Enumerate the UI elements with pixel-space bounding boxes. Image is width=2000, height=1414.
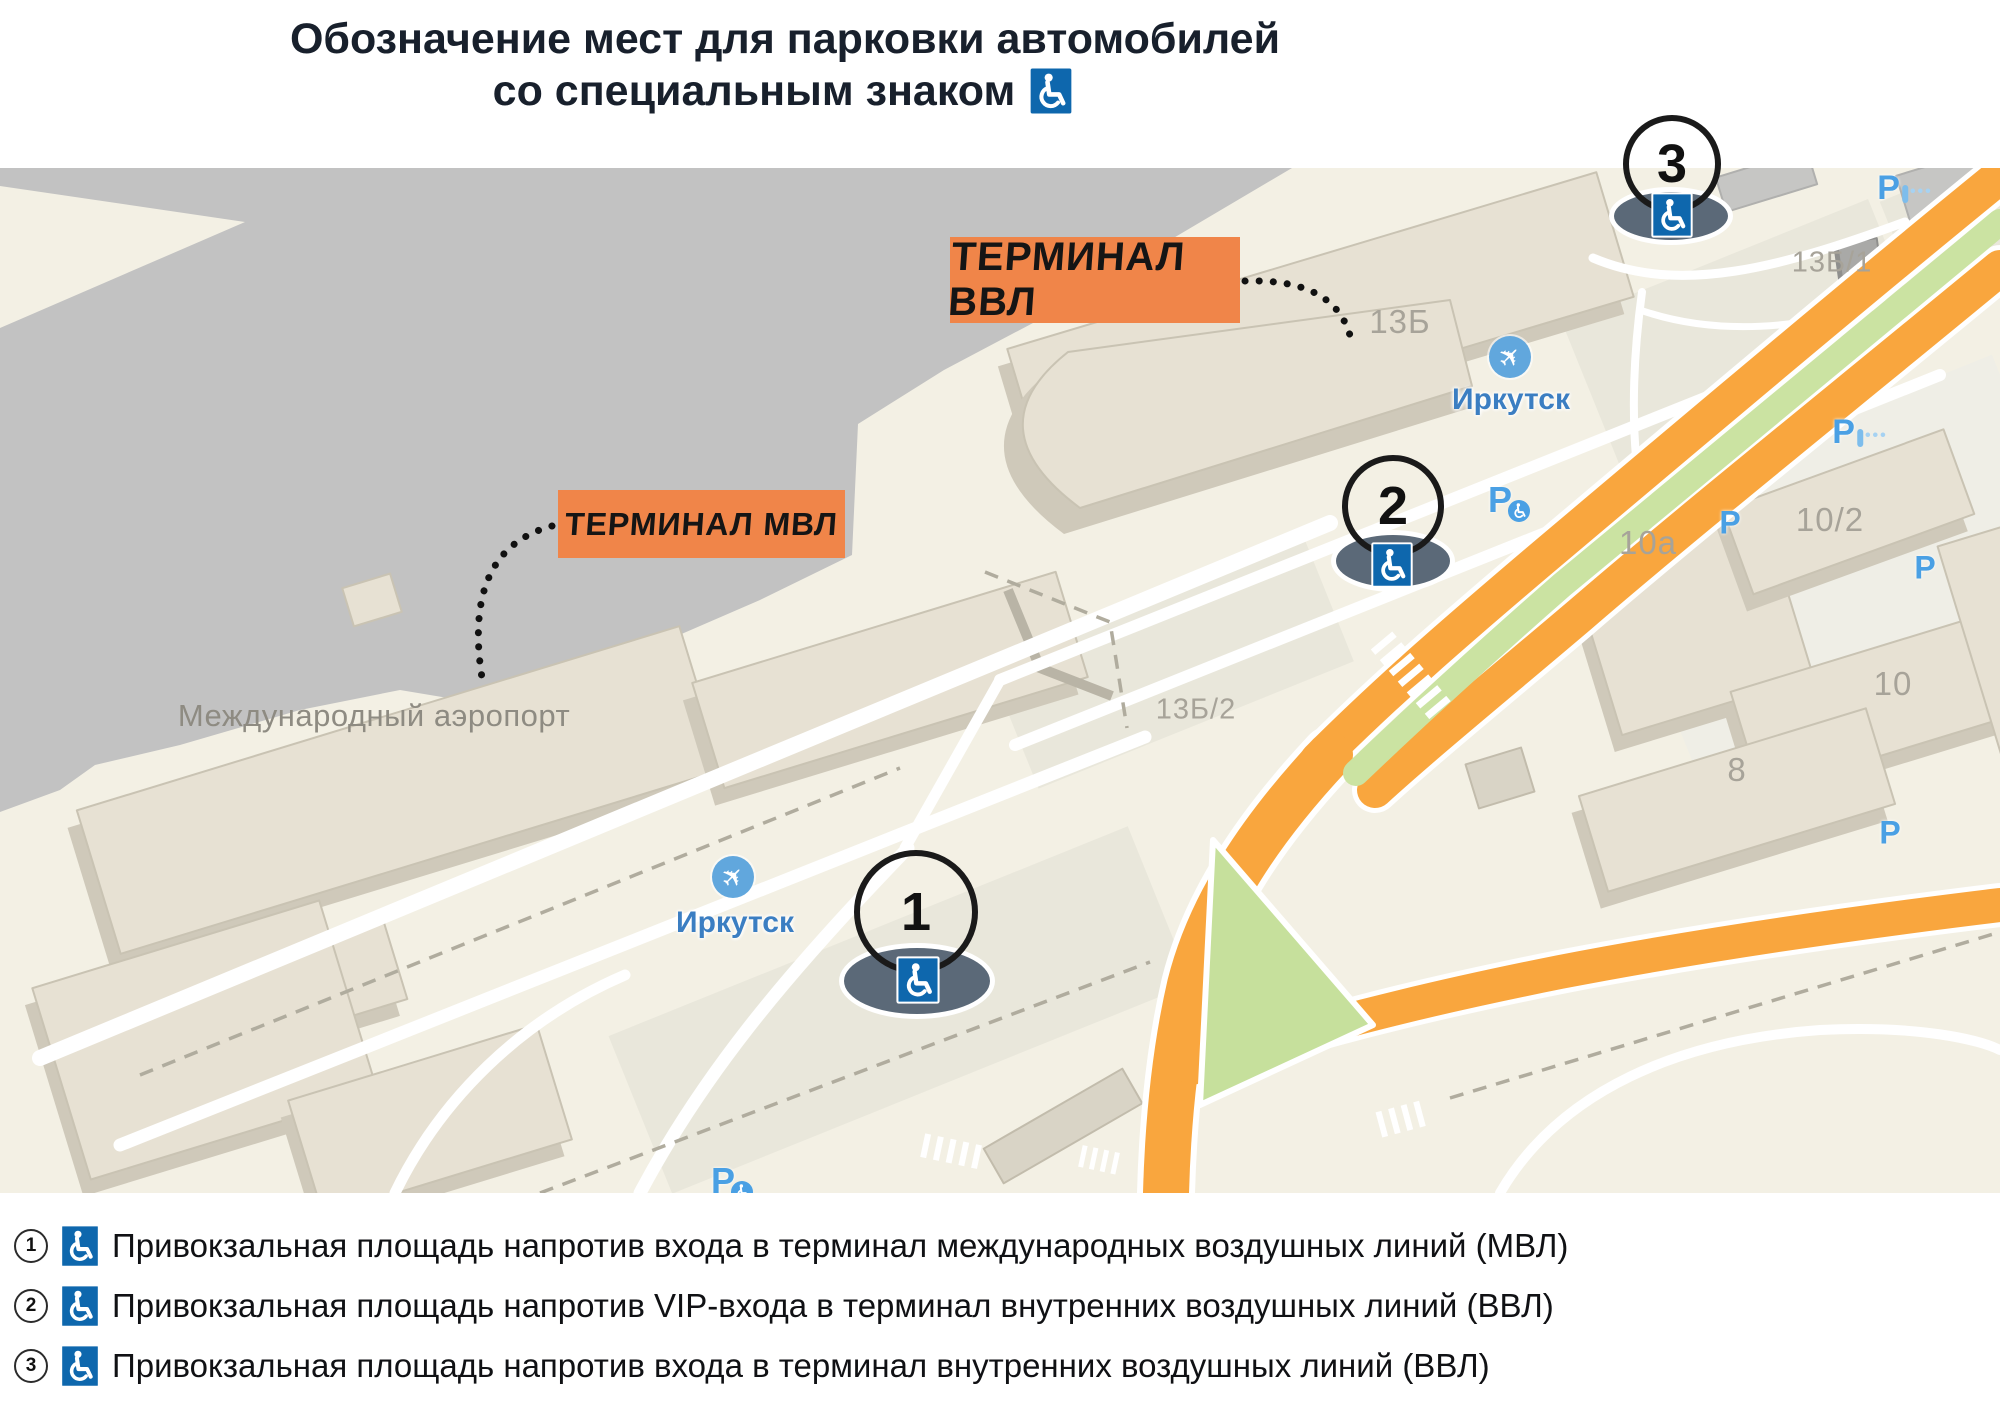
marker-number: 1 — [901, 881, 931, 943]
marker-number: 3 — [1657, 133, 1687, 195]
legend-text: Привокзальная площадь напротив входа в т… — [112, 1347, 1490, 1385]
airport-map: 13Б 13Б/1 13Б/2 10а 10/2 10 8 Международ… — [0, 168, 2000, 1193]
infographic-page: Обозначение мест для парковки автомобиле… — [0, 0, 2000, 1414]
wheelchair-sign-icon — [1025, 66, 1077, 116]
wheelchair-sign-icon — [60, 1223, 100, 1269]
marker-number: 2 — [1378, 475, 1408, 537]
legend-number-circle: 2 — [14, 1289, 48, 1323]
legend-item-3: 3 Привокзальная площадь напротив входа в… — [14, 1342, 1490, 1390]
legend-number-circle: 3 — [14, 1349, 48, 1383]
wheelchair-sign-icon — [896, 956, 940, 1004]
page-title: Обозначение мест для парковки автомобиле… — [0, 14, 1570, 117]
title-line-2: со специальным знаком — [493, 66, 1016, 118]
wheelchair-sign-icon — [60, 1343, 100, 1389]
wheelchair-sign-icon — [1651, 192, 1693, 238]
legend-item-2: 2 Привокзальная площадь напротив VIP-вхо… — [14, 1282, 1554, 1330]
wheelchair-sign-icon — [1370, 542, 1414, 588]
legend-text: Привокзальная площадь напротив входа в т… — [112, 1227, 1568, 1265]
terminal-vvl-tag: ТЕРМИНАЛ ВВЛ — [950, 237, 1240, 323]
legend-number-circle: 1 — [14, 1229, 48, 1263]
title-line-1: Обозначение мест для парковки автомобиле… — [0, 14, 1570, 66]
legend-item-1: 1 Привокзальная площадь напротив входа в… — [14, 1222, 1568, 1270]
terminal-mvl-tag: ТЕРМИНАЛ МВЛ — [558, 490, 845, 558]
wheelchair-sign-icon — [60, 1283, 100, 1329]
legend-text: Привокзальная площадь напротив VIP-входа… — [112, 1287, 1554, 1325]
